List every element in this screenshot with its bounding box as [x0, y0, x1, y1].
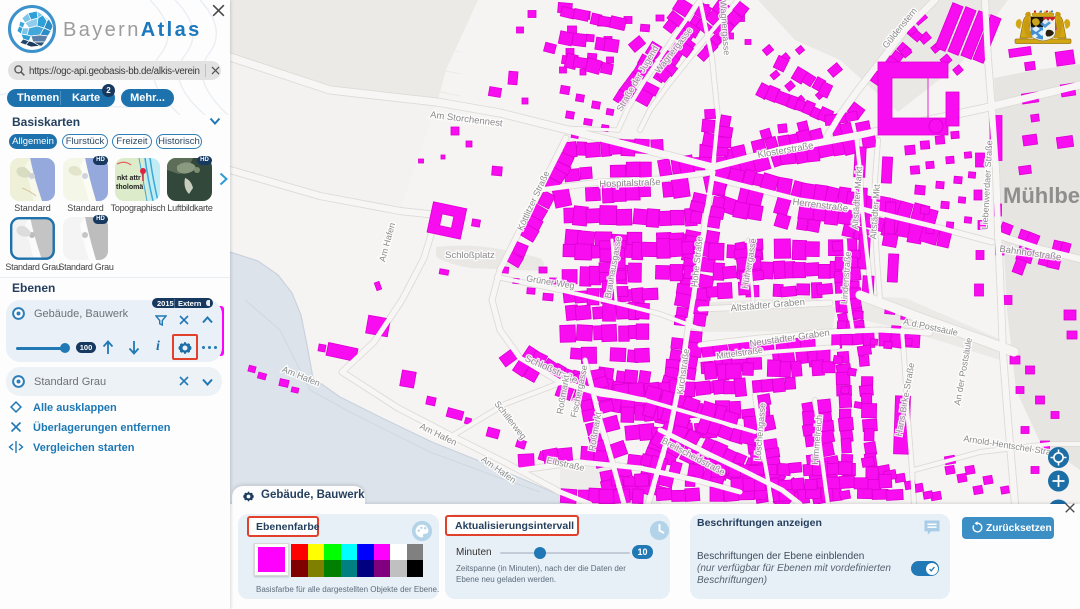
svg-text:Hospitalstraße: Hospitalstraße	[599, 177, 661, 190]
svg-text:nkt attr: nkt attr	[117, 175, 141, 182]
svg-text:Schloßplatz: Schloßplatz	[445, 250, 495, 261]
svg-text:Mühlberg: Mühlberg	[1003, 183, 1080, 208]
svg-text:tholomä: tholomä	[116, 184, 143, 191]
